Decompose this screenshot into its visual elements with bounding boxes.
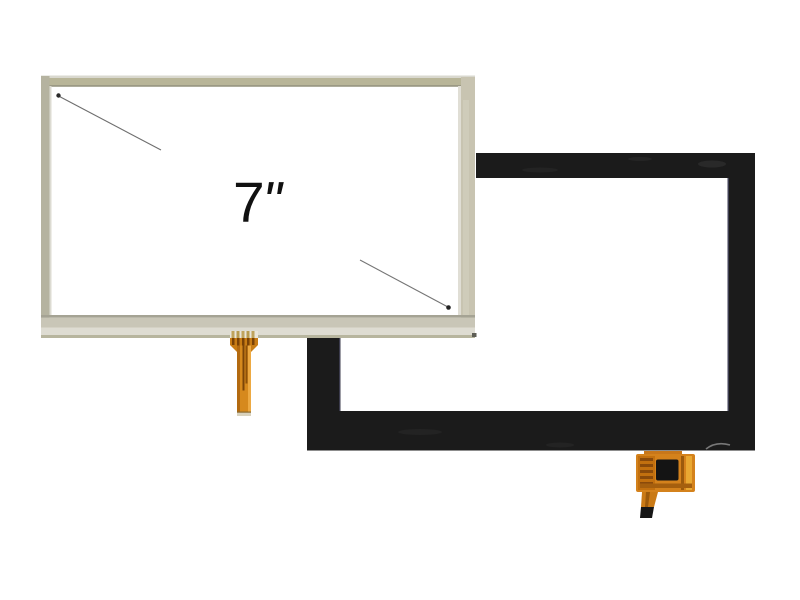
svg-text:7": 7" — [233, 170, 284, 235]
